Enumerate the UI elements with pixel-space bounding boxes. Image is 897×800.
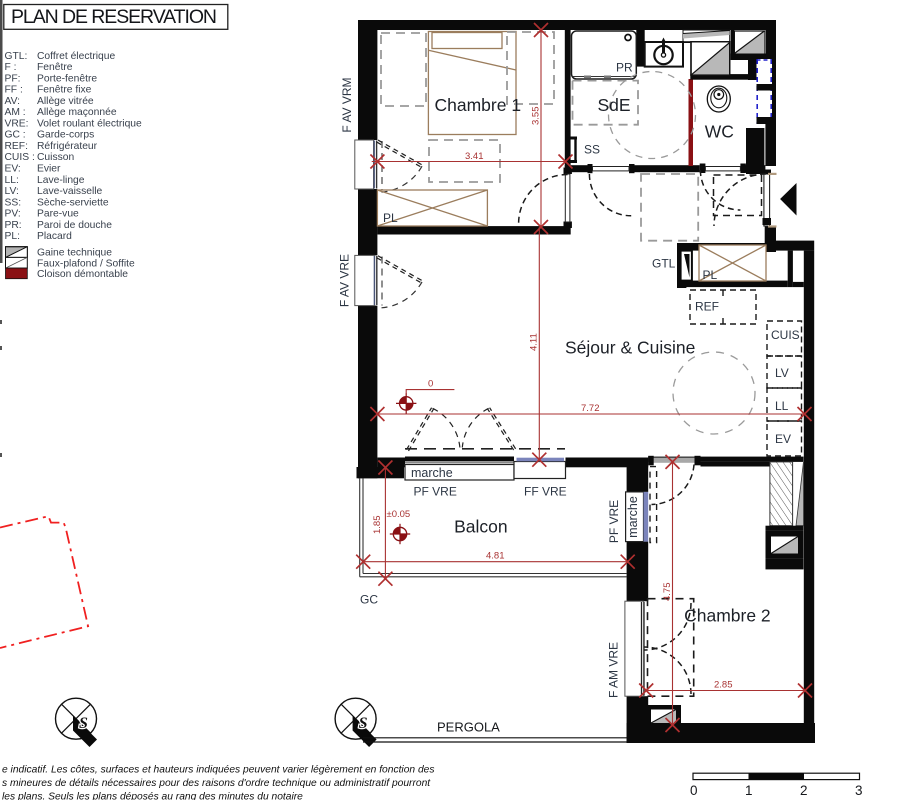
svg-text:WC: WC — [705, 122, 734, 142]
svg-text:Allège maçonnée: Allège maçonnée — [37, 107, 117, 118]
svg-text:Gaine technique: Gaine technique — [37, 248, 112, 259]
svg-text:FF VRE: FF VRE — [524, 485, 567, 499]
svg-text:SS: SS — [584, 143, 600, 157]
svg-text:4.81: 4.81 — [486, 551, 505, 562]
svg-text:e indicatif. Les côtes, surfac: e indicatif. Les côtes, surfaces et haut… — [2, 765, 434, 776]
svg-text:F AV VRE: F AV VRE — [338, 254, 352, 307]
svg-text:LL: LL — [775, 399, 789, 413]
svg-text:Fenêtre fixe: Fenêtre fixe — [37, 85, 92, 96]
svg-text:PF VRE: PF VRE — [607, 500, 621, 543]
svg-text:Porte-fenêtre: Porte-fenêtre — [37, 73, 97, 84]
svg-text:Garde-corps: Garde-corps — [37, 130, 94, 141]
svg-text:Réfrigérateur: Réfrigérateur — [37, 141, 98, 152]
svg-text:AV:: AV: — [5, 96, 20, 107]
svg-text:F AM VRE: F AM VRE — [607, 642, 621, 698]
svg-text:0: 0 — [428, 379, 433, 390]
svg-text:LV:: LV: — [5, 186, 19, 197]
svg-text:1: 1 — [745, 783, 753, 798]
svg-text:marche: marche — [411, 466, 453, 480]
svg-text:PERGOLA: PERGOLA — [437, 720, 500, 735]
svg-text:±0.05: ±0.05 — [387, 509, 411, 520]
svg-text:Cuisson: Cuisson — [37, 152, 74, 163]
svg-text:SdE: SdE — [598, 95, 631, 115]
svg-text:SS:: SS: — [5, 197, 22, 208]
svg-text:EV: EV — [775, 432, 791, 446]
svg-text:0: 0 — [690, 783, 698, 798]
svg-text:Séjour & Cuisine: Séjour & Cuisine — [565, 338, 695, 358]
svg-text:7.72: 7.72 — [581, 403, 600, 414]
svg-text:PV:: PV: — [5, 209, 21, 220]
svg-text:GC: GC — [360, 593, 378, 607]
svg-text:Sèche-serviette: Sèche-serviette — [37, 197, 109, 208]
svg-text:PLAN DE RESERVATION: PLAN DE RESERVATION — [11, 6, 217, 28]
svg-text:PR:: PR: — [5, 220, 22, 231]
svg-text:Lave-linge: Lave-linge — [37, 175, 85, 186]
svg-text:PR: PR — [616, 61, 633, 75]
svg-text:Coffret électrique: Coffret électrique — [37, 51, 115, 62]
svg-text:REF:: REF: — [5, 141, 28, 152]
svg-text:Placard: Placard — [37, 231, 72, 242]
svg-text:CUIS :: CUIS : — [5, 152, 35, 163]
svg-text:3.41: 3.41 — [465, 151, 484, 162]
svg-text:F :: F : — [5, 62, 17, 73]
svg-text:S: S — [79, 715, 88, 732]
svg-text:Pare-vue: Pare-vue — [37, 209, 79, 220]
svg-text:2: 2 — [800, 783, 808, 798]
svg-text:PL:: PL: — [5, 231, 20, 242]
svg-text:Fenêtre: Fenêtre — [37, 62, 73, 73]
svg-text:Balcon: Balcon — [454, 517, 508, 537]
svg-text:Evier: Evier — [37, 164, 61, 175]
svg-text:S: S — [359, 715, 368, 732]
svg-text:PF:: PF: — [5, 73, 21, 84]
svg-text:LV: LV — [775, 366, 789, 380]
svg-text:s mineures de détails nécessai: s mineures de détails nécessaires pour d… — [2, 778, 431, 789]
svg-text:Allège vitrée: Allège vitrée — [37, 96, 94, 107]
svg-text:PL: PL — [383, 211, 398, 225]
svg-text:GTL:: GTL: — [5, 51, 28, 62]
svg-text:marche: marche — [626, 496, 640, 538]
svg-text:Chambre 2: Chambre 2 — [684, 606, 771, 626]
svg-text:les plans. Seuls les plans dép: les plans. Seuls les plans déposés au ra… — [2, 792, 303, 800]
svg-text:3.55: 3.55 — [531, 107, 542, 126]
svg-text:F AV VRM: F AV VRM — [340, 77, 354, 132]
svg-text:LL:: LL: — [5, 175, 19, 186]
svg-text:4.11: 4.11 — [529, 333, 540, 351]
svg-text:Lave-vaisselle: Lave-vaisselle — [37, 186, 103, 197]
svg-text:4.75: 4.75 — [662, 583, 673, 602]
svg-text:PF VRE: PF VRE — [414, 485, 457, 499]
svg-text:PL: PL — [703, 268, 718, 282]
svg-text:EV:: EV: — [5, 164, 21, 175]
svg-text:1.85: 1.85 — [372, 516, 383, 535]
svg-text:Paroi de douche: Paroi de douche — [37, 220, 112, 231]
svg-text:GC :: GC : — [5, 130, 26, 141]
svg-text:3: 3 — [855, 783, 863, 798]
svg-text:Chambre 1: Chambre 1 — [435, 95, 522, 115]
svg-text:Volet roulant électrique: Volet roulant électrique — [37, 118, 142, 129]
svg-text:GTL: GTL — [652, 257, 676, 271]
svg-text:2.85: 2.85 — [714, 680, 733, 691]
svg-text:VRE:: VRE: — [5, 118, 29, 129]
svg-text:Faux-plafond / Soffite: Faux-plafond / Soffite — [37, 258, 135, 269]
svg-text:FF :: FF : — [5, 85, 23, 96]
svg-text:Cloison démontable: Cloison démontable — [37, 269, 128, 280]
svg-text:REF: REF — [695, 300, 719, 314]
svg-text:CUIS: CUIS — [771, 328, 800, 342]
svg-text:AM :: AM : — [5, 107, 26, 118]
